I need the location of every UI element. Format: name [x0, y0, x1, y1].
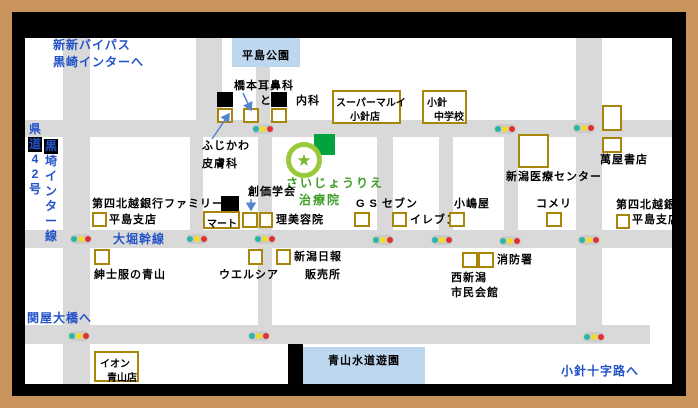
clinic-suffix-label: 治療院	[299, 194, 341, 208]
kojimaya-label: 小嶋屋	[454, 198, 490, 211]
family-mart-label-top: ファミリー	[164, 198, 224, 211]
building-box	[217, 108, 233, 123]
welcia-label: ウエルシア	[219, 269, 279, 282]
kojimaya-box	[449, 212, 465, 227]
kobari-junior-high-box: 小針 中学校	[422, 90, 467, 124]
aeon-label: イオン	[100, 355, 130, 370]
traffic-light-icon	[186, 234, 208, 244]
kobari-label: 小針	[427, 94, 447, 109]
road-vertical-6	[504, 137, 518, 248]
road-vertical-4	[377, 137, 393, 248]
traffic-light-icon	[254, 234, 276, 244]
direction-kurosaki-inter: 黒崎インターへ	[53, 56, 144, 70]
ohori-kansen-road-label: 大堀幹線	[113, 233, 165, 247]
map-edge-gap	[288, 344, 303, 384]
route-sign-kurosaki-inter-line: 黒埼インター線	[44, 139, 58, 244]
soka-gakkai-box	[242, 212, 258, 228]
hashimoto-ent-label: 橋本耳鼻科	[234, 80, 294, 93]
traffic-light-icon	[248, 331, 270, 341]
road-vertical-right	[576, 38, 602, 344]
direction-sekiya-ohashi: 関屋大橋へ	[27, 312, 92, 326]
super-marui-box: スーパーマルイ 小針店	[332, 90, 401, 124]
traffic-light-icon	[431, 235, 453, 245]
daishi-bank-left-label: 第四北越銀行	[92, 198, 164, 211]
clinic-star-logo-icon: ★	[286, 142, 322, 178]
clinic-name-label: さいじょうりえ	[286, 177, 384, 191]
hirashima-park-block: 平島公園	[232, 38, 300, 67]
sales-office-label: 販売所	[305, 269, 341, 282]
building-box	[243, 108, 259, 123]
yorozuya-books-label: 萬屋書店	[600, 154, 648, 167]
niigata-nippo-label: 新潟日報	[294, 251, 342, 264]
hair-salon-label: 理美容院	[276, 214, 324, 227]
aoyama-suits-box	[94, 249, 110, 265]
hair-salon-box	[259, 212, 273, 228]
road-horizontal-bottom	[25, 325, 650, 344]
hirashima-branch-left-label: 平島支店	[109, 214, 157, 227]
daishi-bank-right-label: 第四北越銀行	[616, 199, 672, 212]
bank-left-box	[92, 212, 107, 227]
komeri-label: コメリ	[536, 198, 572, 211]
map-screenshot: { "colors": { "frame_tan": "#c9955c", "r…	[0, 0, 698, 408]
yorozuya-box-upper	[602, 105, 622, 131]
aoyama-store-label: 青山店	[107, 369, 137, 384]
family-mart-label-bottom: マート	[207, 215, 237, 230]
traffic-light-icon	[252, 124, 274, 134]
family-mart-box: マート	[203, 211, 240, 229]
yorozuya-box-lower	[602, 137, 622, 153]
aoyama-suits-label: 紳士服の青山	[94, 269, 166, 282]
tofu-glyph-square	[271, 92, 287, 107]
to-fragment-label: と	[260, 95, 272, 108]
super-marui-branch-label: 小針店	[350, 108, 380, 123]
niigata-medical-center-label: 新潟医療センター	[506, 171, 602, 184]
map-canvas: 平島公園 青山水道遊園 新新バイパス 黒崎インターへ 関屋大橋へ 小針十字路へ …	[25, 38, 672, 384]
junior-high-label: 中学校	[434, 108, 464, 123]
fire-station-label: 消防署	[497, 254, 533, 267]
gs-box	[354, 212, 370, 227]
building-box	[271, 108, 287, 123]
road-vertical-2-lower	[190, 137, 203, 248]
road-vertical-5	[439, 137, 453, 248]
fire-station-box-right	[478, 252, 494, 268]
welcia-box	[248, 249, 263, 265]
route-sign-kendo-42: 県道42号	[28, 122, 42, 197]
traffic-light-icon	[70, 234, 92, 244]
fujikawa-label: ふじかわ	[202, 140, 250, 153]
traffic-light-icon	[68, 331, 90, 341]
star-icon: ★	[296, 152, 311, 169]
traffic-light-icon	[578, 235, 600, 245]
naika-clinic-label: 内科	[296, 95, 320, 108]
seven-eleven-box	[392, 212, 407, 227]
nishi-niigata-label: 西新潟	[451, 272, 487, 285]
traffic-light-icon	[372, 235, 394, 245]
fire-station-box-left	[462, 252, 478, 268]
tofu-glyph-square	[217, 92, 233, 107]
soka-gakkai-label: 創価学会	[248, 186, 296, 199]
traffic-light-icon	[494, 124, 516, 134]
komeri-box	[546, 212, 562, 227]
civic-hall-label: 市民会館	[451, 287, 499, 300]
traffic-light-icon	[573, 123, 595, 133]
bank-right-box	[616, 214, 630, 229]
traffic-light-icon	[499, 236, 521, 246]
super-marui-label: スーパーマルイ	[336, 94, 406, 109]
hirashima-branch-right-label: 平島支店	[632, 214, 672, 227]
hirashima-park-label: 平島公園	[242, 50, 290, 63]
niigata-nippo-box	[276, 249, 291, 265]
gs-label: GS	[356, 198, 382, 211]
dermatology-label: 皮膚科	[202, 158, 238, 171]
medical-center-box	[518, 134, 549, 168]
direction-kobari-jujiro: 小針十字路へ	[561, 365, 639, 379]
aoyama-suido-park-block: 青山水道遊園	[303, 347, 425, 384]
seven-label: セブン	[382, 198, 418, 211]
aoyama-suido-park-label: 青山水道遊園	[328, 355, 400, 368]
aeon-box: イオン 青山店	[94, 351, 139, 382]
direction-shinshin-bypass: 新新バイパス	[53, 39, 131, 53]
traffic-light-icon	[583, 332, 605, 342]
